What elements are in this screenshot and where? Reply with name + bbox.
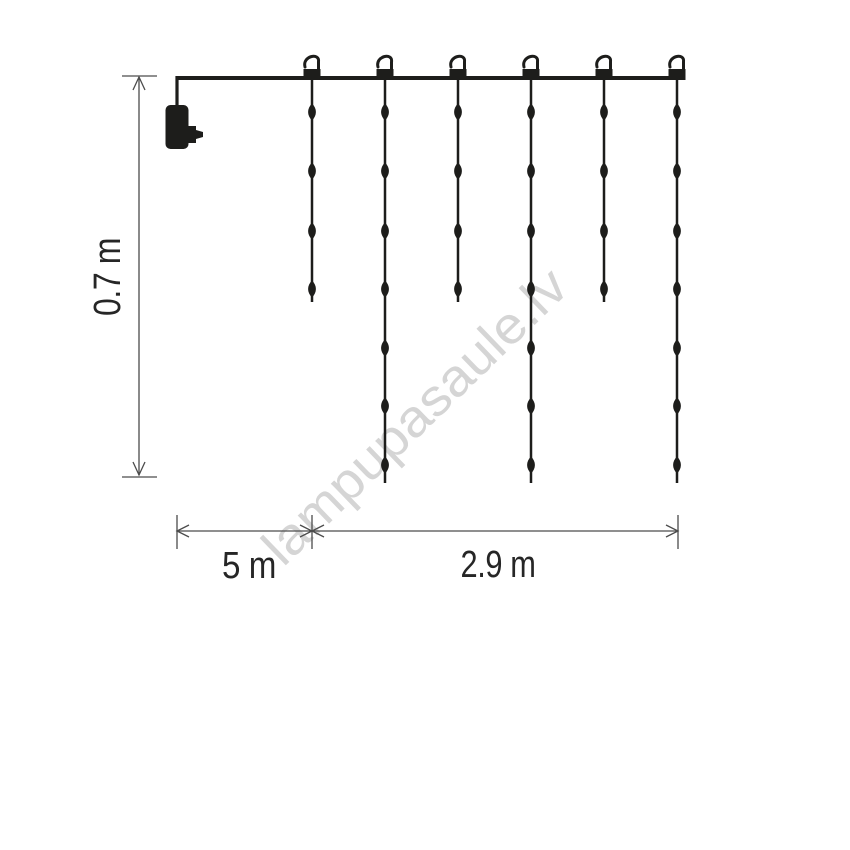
dimension-height-label: 0.7 m <box>87 238 129 316</box>
hook-icon <box>378 56 392 71</box>
hook-icon <box>597 56 611 71</box>
light-strand <box>304 56 321 302</box>
led-bead <box>454 163 462 180</box>
led-bead <box>527 223 535 240</box>
led-bead <box>381 163 389 180</box>
light-strand <box>669 56 686 483</box>
led-bead <box>527 163 535 180</box>
led-bead <box>673 398 681 415</box>
hook-clip <box>596 69 613 80</box>
hook-icon <box>524 56 538 71</box>
dimension-lead-label: 5 m <box>222 545 276 587</box>
hook-icon <box>670 56 684 71</box>
led-bead <box>673 340 681 357</box>
led-bead <box>600 281 608 298</box>
light-strand <box>596 56 613 302</box>
led-bead <box>381 340 389 357</box>
hook-icon <box>451 56 465 71</box>
dimension-width: 5 m 2.9 m <box>177 515 678 587</box>
led-bead <box>454 223 462 240</box>
plug-pin-icon <box>187 126 203 143</box>
led-bead <box>600 223 608 240</box>
light-curtain <box>304 56 686 483</box>
led-bead <box>308 163 316 180</box>
hook-clip <box>669 69 686 80</box>
diagram-svg: lampupasaule.lv 0.7 m 5 m 2.9 m <box>0 0 850 850</box>
hook-clip <box>304 69 321 80</box>
dimension-span-label: 2.9 m <box>461 544 536 586</box>
hook-clip <box>450 69 467 80</box>
led-bead <box>673 163 681 180</box>
led-bead <box>308 281 316 298</box>
led-bead <box>673 457 681 474</box>
led-bead <box>454 281 462 298</box>
led-bead <box>600 163 608 180</box>
led-bead <box>673 104 681 121</box>
plug-body-icon <box>166 105 189 149</box>
product-dimension-diagram: lampupasaule.lv 0.7 m 5 m 2.9 m <box>0 0 850 850</box>
led-bead <box>454 104 462 121</box>
led-bead <box>381 104 389 121</box>
led-bead <box>600 104 608 121</box>
led-bead <box>673 281 681 298</box>
led-bead <box>308 104 316 121</box>
led-bead <box>527 457 535 474</box>
hook-clip <box>523 69 540 80</box>
hook-clip <box>377 69 394 80</box>
hook-icon <box>305 56 319 71</box>
led-bead <box>308 223 316 240</box>
led-bead <box>381 281 389 298</box>
led-bead <box>381 223 389 240</box>
light-strand <box>450 56 467 302</box>
led-bead <box>527 104 535 121</box>
dimension-height: 0.7 m <box>87 76 157 477</box>
led-bead <box>527 398 535 415</box>
led-bead <box>673 223 681 240</box>
